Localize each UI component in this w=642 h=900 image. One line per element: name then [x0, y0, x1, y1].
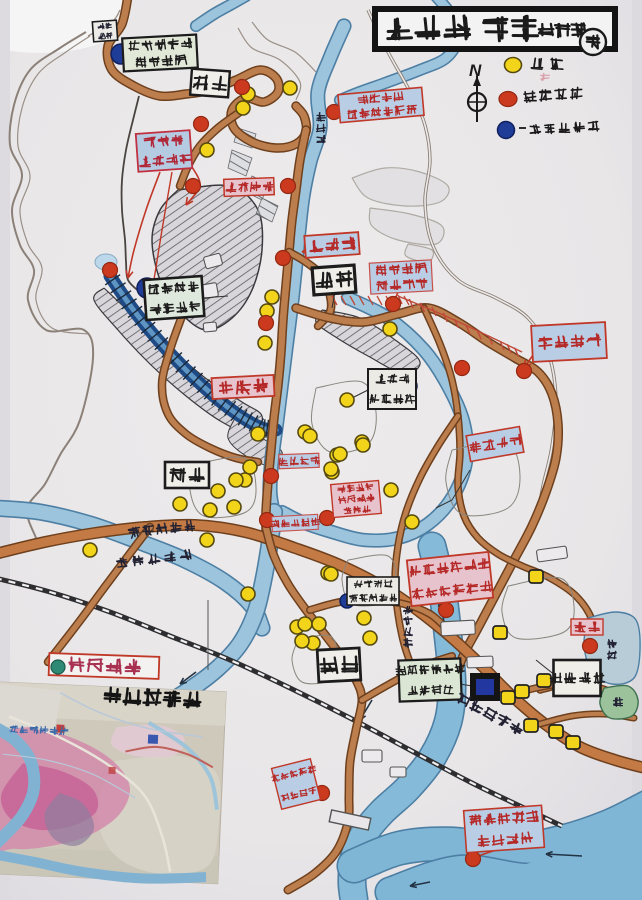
svg-text:N: N: [469, 61, 482, 80]
